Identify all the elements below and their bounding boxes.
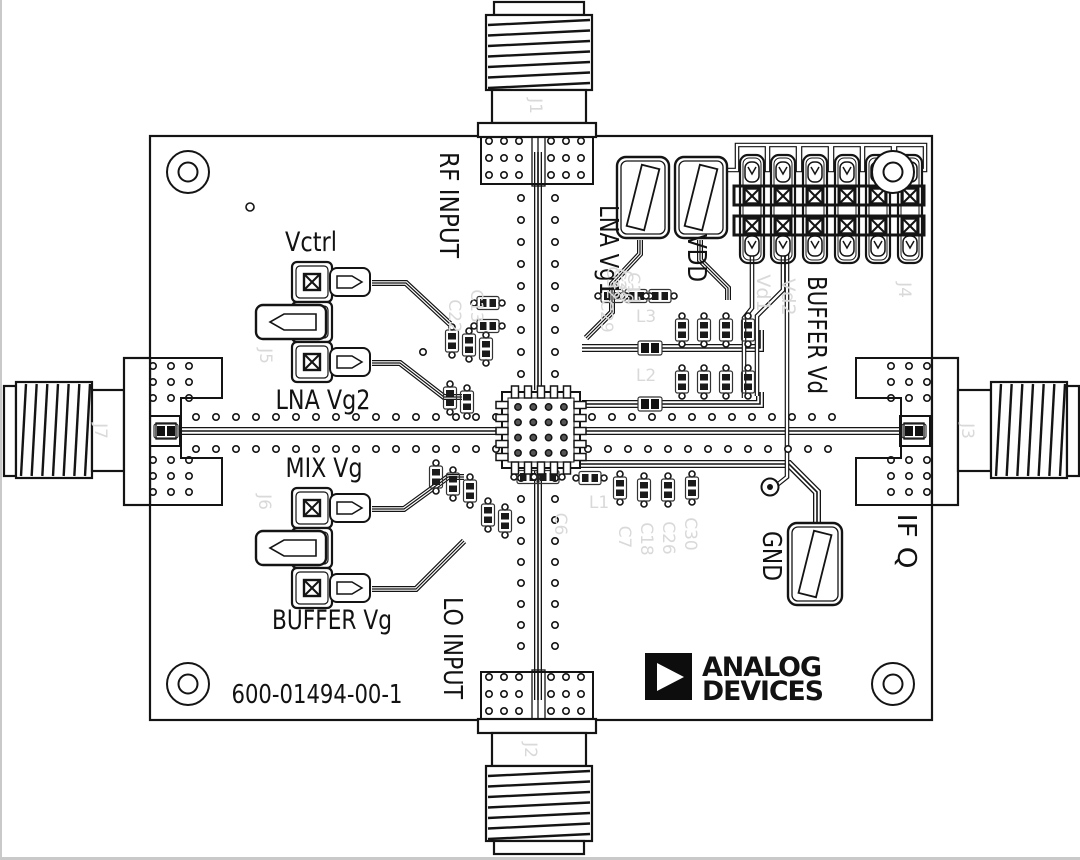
via [413, 446, 419, 452]
ground-via-hole [767, 484, 773, 490]
ic-pad [525, 386, 532, 398]
capacitor-pad [446, 400, 454, 407]
header-pad [808, 162, 822, 182]
capacitor-pad [466, 483, 474, 490]
via [578, 155, 584, 161]
capacitor-pad [700, 374, 708, 381]
via [373, 446, 379, 452]
ic-thermal-via [545, 419, 551, 425]
via [705, 446, 711, 452]
via [765, 446, 771, 452]
series-pad [651, 399, 659, 409]
mounting-hole-pad [179, 163, 198, 182]
capacitor-pad [484, 517, 492, 524]
capacitor-pad [463, 404, 471, 411]
header-pad [776, 236, 790, 256]
via [433, 446, 439, 452]
via [502, 532, 508, 538]
via [186, 473, 192, 479]
via [552, 496, 558, 502]
via [745, 341, 751, 347]
via [518, 580, 524, 586]
via [785, 446, 791, 452]
via [483, 360, 489, 366]
via [486, 155, 492, 161]
via [168, 379, 174, 385]
header-pad [745, 162, 759, 182]
via [679, 365, 685, 371]
via [246, 203, 254, 211]
via [723, 365, 729, 371]
capacitor-pad [700, 332, 708, 339]
capacitor-pad [449, 476, 457, 483]
ic-pad [574, 428, 586, 435]
capacitor-pad [484, 507, 492, 514]
via [645, 446, 651, 452]
via [563, 138, 569, 144]
ic-thermal-via [561, 450, 567, 456]
capacitor-pad [465, 347, 473, 354]
via [888, 379, 894, 385]
via [745, 393, 751, 399]
via [552, 217, 558, 223]
via [186, 489, 192, 495]
via [473, 414, 479, 420]
capacitor-pad [744, 322, 752, 329]
via [168, 473, 174, 479]
ic-thermal-via [561, 404, 567, 410]
sma-threads [16, 382, 92, 478]
label-rf-input: RF INPUT [433, 152, 463, 258]
capacitor-pad [490, 299, 497, 307]
via [805, 446, 811, 452]
via [333, 446, 339, 452]
via [518, 559, 524, 565]
label-vctrl: Vctrl [285, 227, 337, 258]
via [501, 155, 507, 161]
via [552, 538, 558, 544]
capacitor-pad [480, 322, 487, 330]
via [709, 414, 715, 420]
via [501, 691, 507, 697]
via [649, 414, 655, 420]
capacitor-pad [744, 332, 752, 339]
ic-pad [574, 454, 586, 461]
via [518, 622, 524, 628]
capacitor-pad [449, 486, 457, 493]
via [186, 363, 192, 369]
via [552, 580, 558, 586]
via [464, 385, 470, 391]
via [233, 414, 239, 420]
ic-thermal-via [515, 404, 521, 410]
via [450, 495, 456, 501]
refdes-c30: C30 [680, 517, 700, 551]
capacitor-pad [678, 374, 686, 381]
via [749, 414, 755, 420]
capacitor-pad [501, 523, 509, 530]
via [486, 674, 492, 680]
via [485, 526, 491, 532]
logo-text-devices: DEVICES [702, 676, 823, 707]
via [552, 643, 558, 649]
via [516, 691, 522, 697]
capacitor-pad [640, 492, 648, 499]
refdes-vd1: Vd1 [752, 274, 774, 311]
refdes-j7: J7 [90, 422, 110, 439]
via [518, 195, 524, 201]
refdes-l1: L1 [589, 493, 609, 513]
capacitor-pad [722, 322, 730, 329]
via [906, 473, 912, 479]
capacitor-pad [678, 332, 686, 339]
capacitor-pad [744, 384, 752, 391]
via [906, 379, 912, 385]
capacitor-pad [664, 482, 672, 489]
ic-thermal-via [530, 450, 536, 456]
via [924, 473, 930, 479]
capacitor-pad [678, 322, 686, 329]
label-if-q: IF Q [891, 514, 921, 569]
ic-thermal-via [530, 434, 536, 440]
via [518, 283, 524, 289]
via [518, 517, 524, 523]
via [499, 323, 505, 329]
via [679, 313, 685, 319]
via [924, 363, 930, 369]
capacitor-pad [448, 333, 456, 340]
via [548, 155, 554, 161]
capacitor-pad [446, 390, 454, 397]
via [723, 393, 729, 399]
via [578, 691, 584, 697]
ic-pad [551, 386, 558, 398]
via [609, 414, 615, 420]
via [516, 674, 522, 680]
via [447, 409, 453, 415]
ic-pad [551, 462, 558, 474]
via [671, 293, 677, 299]
via [502, 504, 508, 510]
via [420, 349, 426, 355]
capacitor-pad [616, 480, 624, 487]
capacitor-pad [722, 384, 730, 391]
capacitor-pad [640, 482, 648, 489]
ic-thermal-via [545, 434, 551, 440]
header-pad [840, 236, 854, 256]
via [829, 414, 835, 420]
via [641, 501, 647, 507]
via [464, 413, 470, 419]
capacitor-pad [501, 513, 509, 520]
via [433, 460, 439, 466]
via [253, 446, 259, 452]
via [518, 261, 524, 267]
via [450, 467, 456, 473]
refdes-c18: C18 [636, 522, 656, 556]
via [573, 475, 579, 481]
via [516, 708, 522, 714]
ic-pad [574, 441, 586, 448]
mounting-hole-pad [884, 163, 903, 182]
via [193, 446, 199, 452]
via [665, 501, 671, 507]
capacitor-pad [722, 332, 730, 339]
refdes-c13: C13 [466, 289, 486, 323]
via [486, 172, 492, 178]
via [467, 474, 473, 480]
refdes-c22: C22 [444, 299, 464, 333]
label-buffer-vd: BUFFER Vd [801, 276, 831, 394]
capacitor-pad [448, 343, 456, 350]
capacitor-pad [664, 492, 672, 499]
series-pad [905, 426, 913, 436]
via [473, 446, 479, 452]
via [552, 261, 558, 267]
capacitor-pad [592, 474, 599, 482]
via [501, 708, 507, 714]
refdes-c26: C26 [658, 521, 678, 555]
series-pad [651, 343, 659, 353]
ic-pad [496, 402, 508, 409]
via [531, 474, 537, 480]
refdes-c11: C11 [623, 272, 643, 306]
ic-pad [496, 415, 508, 422]
ic-thermal-via [530, 419, 536, 425]
via [449, 352, 455, 358]
via [273, 446, 279, 452]
via [578, 708, 584, 714]
capacitor-pad [678, 384, 686, 391]
via [467, 502, 473, 508]
via [888, 473, 894, 479]
via [485, 498, 491, 504]
via [511, 474, 517, 480]
via [629, 414, 635, 420]
header-pad [840, 162, 854, 182]
via [253, 414, 259, 420]
via [745, 313, 751, 319]
ic-pad [496, 441, 508, 448]
via [563, 674, 569, 680]
via [552, 239, 558, 245]
via [601, 475, 607, 481]
via [168, 457, 174, 463]
via [518, 349, 524, 355]
via [552, 349, 558, 355]
via [552, 622, 558, 628]
label-lna-vg2: LNA Vg2 [276, 385, 371, 416]
via [471, 323, 477, 329]
via [924, 489, 930, 495]
via [168, 489, 174, 495]
via [563, 172, 569, 178]
refdes-j4: J4 [894, 281, 914, 298]
via [729, 414, 735, 420]
via [578, 674, 584, 680]
via [552, 327, 558, 333]
label-lo-input: LO INPUT [437, 597, 467, 699]
header-pad [903, 236, 917, 256]
via [516, 155, 522, 161]
via [518, 305, 524, 311]
analog-devices-logo: ANALOG DEVICES [645, 652, 823, 707]
capacitor-pad [616, 490, 624, 497]
via [825, 446, 831, 452]
ic-pad [496, 454, 508, 461]
via [665, 473, 671, 479]
label-buffer-vg: BUFFER Vg [272, 605, 392, 636]
capacitor-pad [722, 374, 730, 381]
via [518, 239, 524, 245]
refdes-vd2: Vd2 [777, 278, 799, 315]
label-vdd: VDD [681, 234, 711, 282]
via [578, 138, 584, 144]
via [193, 414, 199, 420]
pcb-assembly-drawing: J1 J2 J7 J3 J5 J6 [0, 0, 1080, 860]
ic-pad [564, 386, 571, 398]
capacitor-pad [744, 374, 752, 381]
via [518, 371, 524, 377]
capacitor-pad [482, 341, 490, 348]
ic-pad [512, 386, 519, 398]
via [689, 471, 695, 477]
via [393, 446, 399, 452]
via [888, 489, 894, 495]
via [168, 395, 174, 401]
mounting-hole-pad [884, 675, 903, 694]
refdes-j6: J6 [254, 493, 274, 510]
via [213, 414, 219, 420]
ic-pad [538, 462, 545, 474]
via [518, 327, 524, 333]
via [548, 691, 554, 697]
via [689, 414, 695, 420]
via [552, 283, 558, 289]
capacitor-pad [700, 322, 708, 329]
via [701, 365, 707, 371]
image-edge-artifact [0, 0, 2, 860]
via [641, 473, 647, 479]
via [548, 674, 554, 680]
capacitor-pad [652, 292, 659, 300]
via [518, 643, 524, 649]
via [373, 414, 379, 420]
via [723, 341, 729, 347]
via [685, 446, 691, 452]
refdes-j5: J5 [255, 347, 275, 364]
via [501, 138, 507, 144]
label-mix-vg: MIX Vg [286, 453, 363, 484]
capacitor-pad [466, 493, 474, 500]
via [906, 363, 912, 369]
via [518, 538, 524, 544]
via [548, 138, 554, 144]
header-pad [776, 162, 790, 182]
ic-thermal-via [515, 434, 521, 440]
sma-threads [991, 382, 1067, 478]
via [665, 446, 671, 452]
via [745, 446, 751, 452]
capacitor-pad [688, 490, 696, 497]
refdes-j1: J1 [525, 97, 545, 114]
via [501, 674, 507, 680]
via [924, 395, 930, 401]
refdes-l2: L2 [636, 366, 656, 386]
refdes-c7: C7 [614, 526, 634, 549]
pcb-screenshot: { "board": { "part_number": "600-01494-0… [0, 0, 1080, 860]
ic-thermal-via [545, 450, 551, 456]
capacitor-pad [432, 469, 440, 476]
via [888, 363, 894, 369]
refdes-l3: L3 [636, 307, 656, 327]
via [433, 414, 439, 420]
via [552, 601, 558, 607]
capacitor-pad [482, 351, 490, 358]
via [168, 363, 174, 369]
via [548, 172, 554, 178]
ic-thermal-via [530, 404, 536, 410]
via [516, 172, 522, 178]
via [679, 341, 685, 347]
via [518, 217, 524, 223]
ic-thermal-via [515, 419, 521, 425]
ic-pad [525, 462, 532, 474]
via [924, 457, 930, 463]
refdes-j3: J3 [957, 422, 977, 439]
header-pad [871, 236, 885, 256]
ic-thermal-via [545, 404, 551, 410]
capacitor-pad [582, 474, 589, 482]
via [353, 446, 359, 452]
label-gnd: GND [756, 531, 786, 581]
sma-threads [486, 15, 592, 90]
refdes-c29: C29 [596, 299, 616, 333]
via [789, 414, 795, 420]
ic-pad [564, 462, 571, 474]
via [393, 414, 399, 420]
via [563, 155, 569, 161]
ic-pad [496, 428, 508, 435]
board-part-number: 600-01494-00-1 [232, 680, 403, 710]
via [433, 488, 439, 494]
via [605, 446, 611, 452]
via [453, 446, 459, 452]
via [563, 691, 569, 697]
ic-pad [574, 402, 586, 409]
via [413, 414, 419, 420]
series-pad [641, 343, 649, 353]
ic-pad [512, 462, 519, 474]
via [552, 195, 558, 201]
via [518, 496, 524, 502]
series-pad [157, 426, 165, 436]
via [213, 446, 219, 452]
via [453, 414, 459, 420]
via [499, 300, 505, 306]
series-pad [167, 426, 175, 436]
capacitor-pad [688, 480, 696, 487]
center-ic-qfn [496, 386, 586, 474]
ic-thermal-via [561, 419, 567, 425]
via [906, 395, 912, 401]
via [293, 446, 299, 452]
via [701, 393, 707, 399]
via [518, 601, 524, 607]
series-pad [641, 399, 649, 409]
capacitor-pad [463, 394, 471, 401]
via [679, 393, 685, 399]
